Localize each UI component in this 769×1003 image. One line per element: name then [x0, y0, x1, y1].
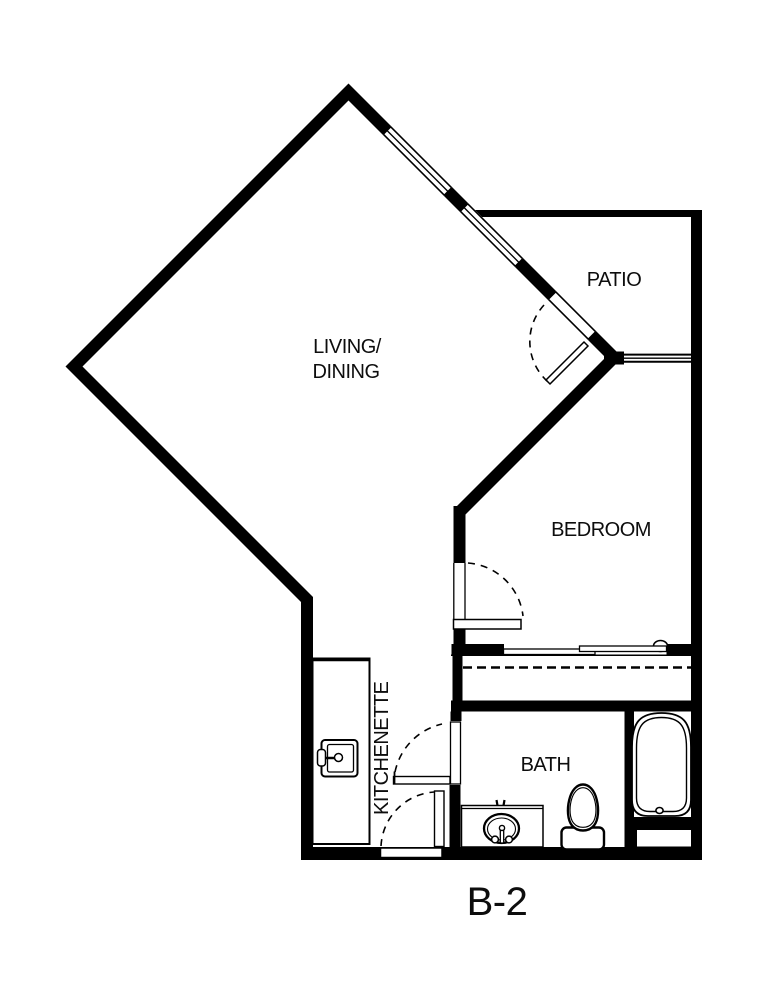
svg-text:B-2: B-2 [467, 880, 528, 924]
svg-text:LIVING/: LIVING/ [313, 336, 382, 358]
svg-text:BATH: BATH [521, 754, 571, 776]
svg-text:DINING: DINING [313, 361, 380, 383]
svg-text:KITCHENETTE: KITCHENETTE [371, 681, 393, 815]
svg-text:BEDROOM: BEDROOM [551, 519, 651, 541]
svg-text:PATIO: PATIO [587, 269, 642, 291]
